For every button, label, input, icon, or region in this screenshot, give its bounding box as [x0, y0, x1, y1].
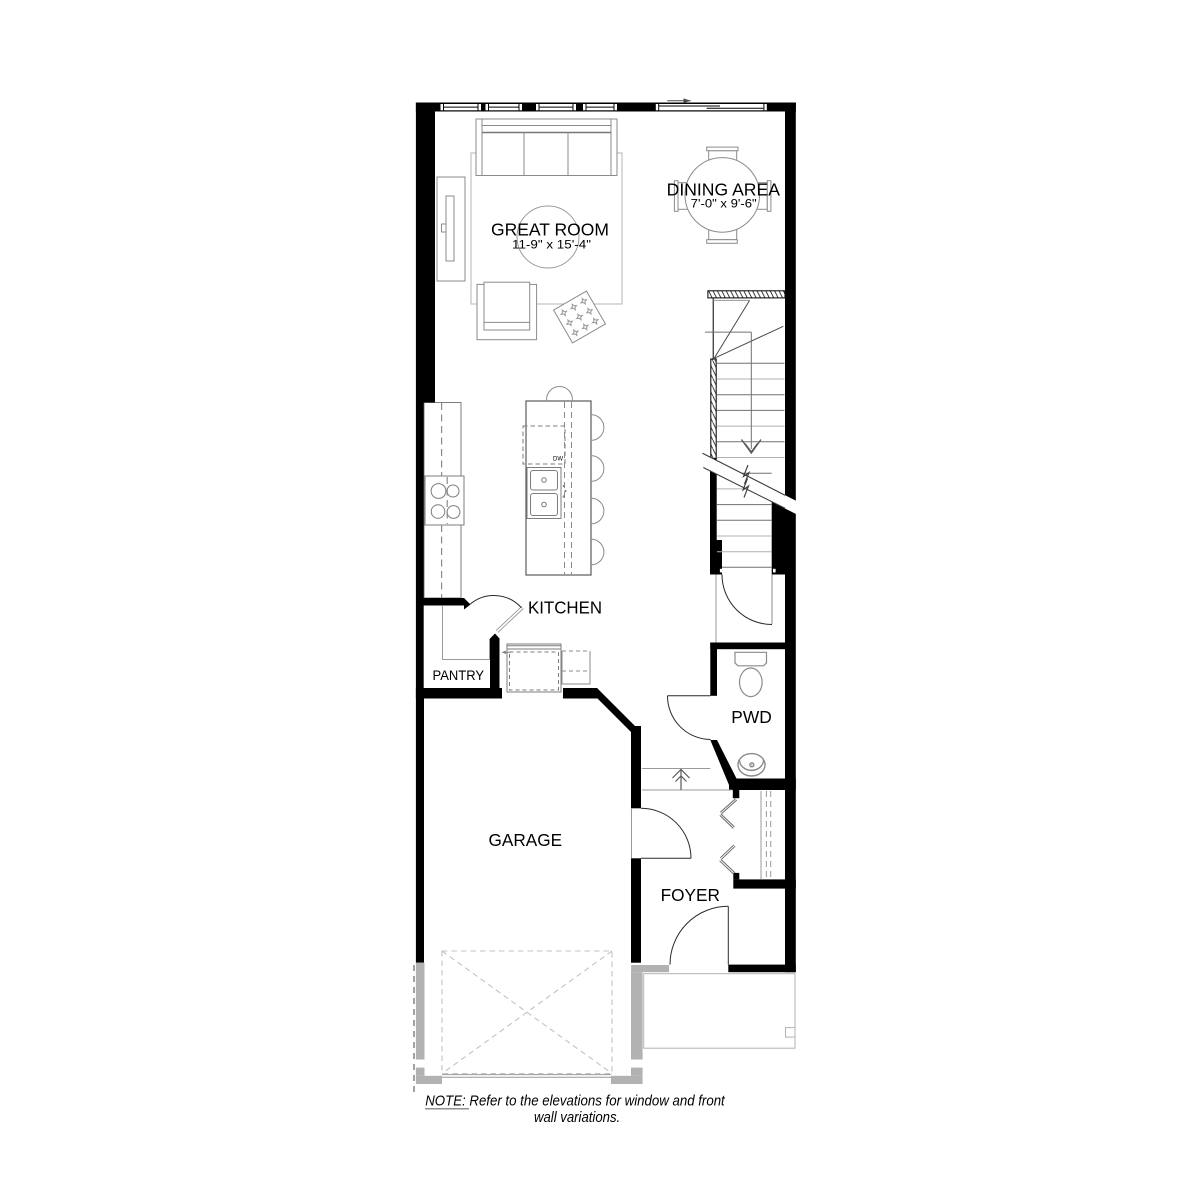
svg-text:wall variations.: wall variations.	[534, 1109, 620, 1126]
svg-text:GARAGE: GARAGE	[489, 830, 563, 850]
svg-text:DW: DW	[553, 456, 564, 463]
svg-text:7'-0" x 9'-6": 7'-0" x 9'-6"	[691, 198, 757, 211]
svg-text:GREAT ROOM: GREAT ROOM	[491, 220, 609, 240]
svg-text:KITCHEN: KITCHEN	[528, 598, 602, 618]
svg-text:PWD: PWD	[731, 707, 772, 727]
svg-text:DINING AREA: DINING AREA	[667, 179, 781, 199]
svg-text:NOTE: Refer to the elevations: NOTE: Refer to the elevations for window…	[425, 1093, 725, 1110]
svg-text:11-9" x 15'-4": 11-9" x 15'-4"	[512, 239, 591, 252]
svg-text:FOYER: FOYER	[661, 885, 720, 905]
svg-text:PANTRY: PANTRY	[433, 667, 485, 683]
